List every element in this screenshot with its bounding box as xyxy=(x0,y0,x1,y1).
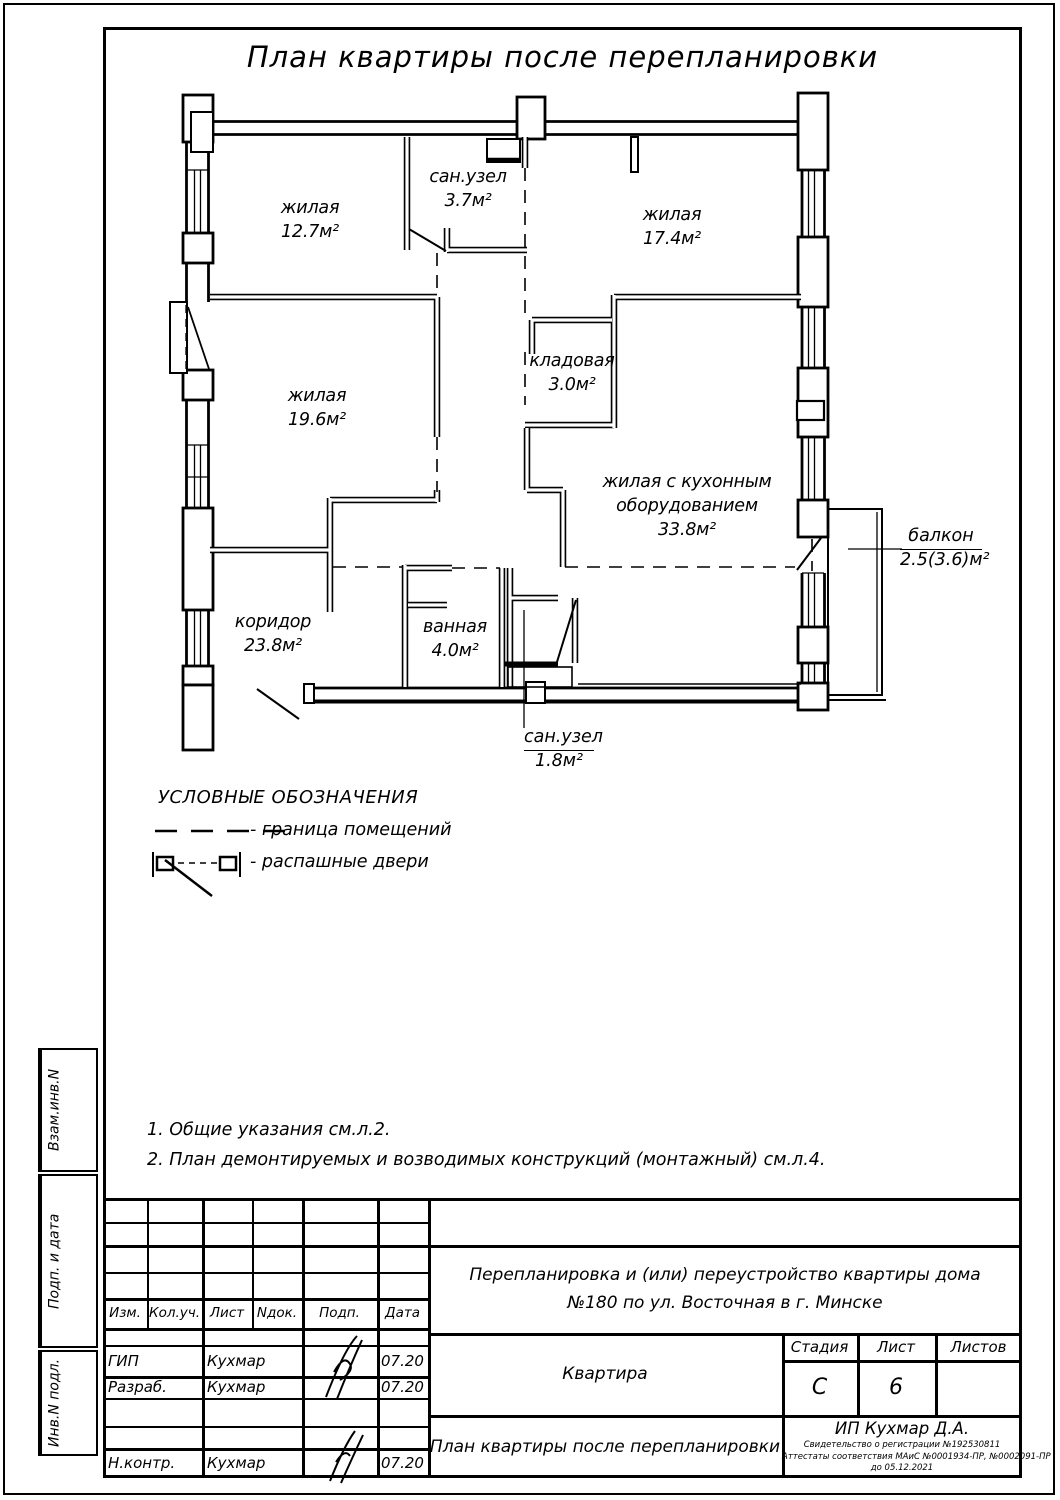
tb-line xyxy=(202,1198,205,1478)
tb-row-razrab-role: Разраб. xyxy=(108,1376,200,1398)
tb-sheet-title: План квартиры после перепланировки xyxy=(428,1415,782,1478)
room-label-vannaya: ванная 4.0м² xyxy=(385,615,525,663)
legend-door-swatch xyxy=(153,852,240,896)
note-1: 1. Общие указания см.л.2. xyxy=(147,1120,390,1140)
tb-cert-1: Свидетельство о регистрации №192530811 xyxy=(782,1440,1022,1452)
left-niche xyxy=(170,302,209,373)
tb-object: Квартира xyxy=(428,1333,782,1415)
tb-row-gip-date: 07.20 xyxy=(377,1345,428,1376)
sidebar-box-podp-data: Подп. и дата xyxy=(38,1174,98,1348)
tb-sheets-label: Листов xyxy=(935,1333,1022,1360)
tb-row-nkontr-date: 07.20 xyxy=(377,1448,428,1478)
legend-item-boundary: - граница помещений xyxy=(250,820,451,840)
tb-row-gip-role: ГИП xyxy=(108,1345,200,1376)
tb-col-podp: Подп. xyxy=(302,1298,377,1328)
room-label-zhilaya-19-6: жилая 19.6м² xyxy=(247,384,387,432)
drawing-sheet: План квартиры после перепланировки xyxy=(0,0,1060,1500)
room-label-zhilaya-kitchen: жилая с кухонным оборудованием 33.8м² xyxy=(577,470,797,542)
tb-line xyxy=(377,1198,380,1478)
tb-project-title: Перепланировка и (или) переустройство кв… xyxy=(428,1245,1022,1333)
tb-col-izm: Изм. xyxy=(103,1298,147,1328)
sidebar-box-vzam: Взам.инв.N xyxy=(38,1048,98,1172)
balcony-outline xyxy=(828,509,886,700)
titleblock-top-border xyxy=(103,1198,1022,1201)
tb-row-razrab-date: 07.20 xyxy=(377,1376,428,1398)
tb-sheets-value xyxy=(935,1360,1022,1415)
sidebar-box-inv: Инв.N подл. xyxy=(38,1350,98,1456)
tb-stage-label: Стадия xyxy=(782,1333,857,1360)
tb-company-block: ИП Кухмар Д.А. Свидетельство о регистрац… xyxy=(782,1418,1022,1475)
legend-item-doors: - распашные двери xyxy=(250,852,429,872)
tb-line xyxy=(302,1198,305,1478)
tb-col-koluch: Кол.уч. xyxy=(147,1298,202,1328)
room-label-sanuzel-3-7: сан.узел 3.7м² xyxy=(408,165,528,213)
signature-strokes xyxy=(326,1336,363,1483)
note-2: 2. План демонтируемых и возводимых конст… xyxy=(147,1150,825,1170)
tb-row-razrab-name: Кухмар xyxy=(207,1376,300,1398)
room-label-zhilaya-12-7: жилая 12.7м² xyxy=(240,196,380,244)
tb-sheet-value: 6 xyxy=(857,1360,935,1415)
room-label-kladovaya: кладовая 3.0м² xyxy=(502,349,642,397)
tb-cert-3: до 05.12.2021 xyxy=(782,1463,1022,1475)
room-label-sanuzel-1-8: сан.узел 1.8м² xyxy=(524,727,594,772)
tb-cert-2: Аттестаты соответствия МАиС №0001934-ПР,… xyxy=(782,1452,1022,1464)
room-label-balkon: балкон 2.5(3.6)м² xyxy=(900,526,982,571)
tb-row-nkontr-name: Кухмар xyxy=(207,1448,300,1478)
tb-stage-value: С xyxy=(782,1360,857,1415)
room-label-koridor: коридор 23.8м² xyxy=(203,610,343,658)
tb-col-data: Дата xyxy=(377,1298,428,1328)
tb-company: ИП Кухмар Д.А. xyxy=(782,1418,1022,1440)
room-label-zhilaya-17-4: жилая 17.4м² xyxy=(602,203,742,251)
tb-col-list: Лист xyxy=(202,1298,252,1328)
tb-row-gip-name: Кухмар xyxy=(207,1345,300,1376)
tb-col-ndok: Nдок. xyxy=(252,1298,302,1328)
tb-row-nkontr-role: Н.контр. xyxy=(108,1448,200,1478)
legend-title: УСЛОВНЫЕ ОБОЗНАЧЕНИЯ xyxy=(158,787,418,808)
tb-sheet-label: Лист xyxy=(857,1333,935,1360)
